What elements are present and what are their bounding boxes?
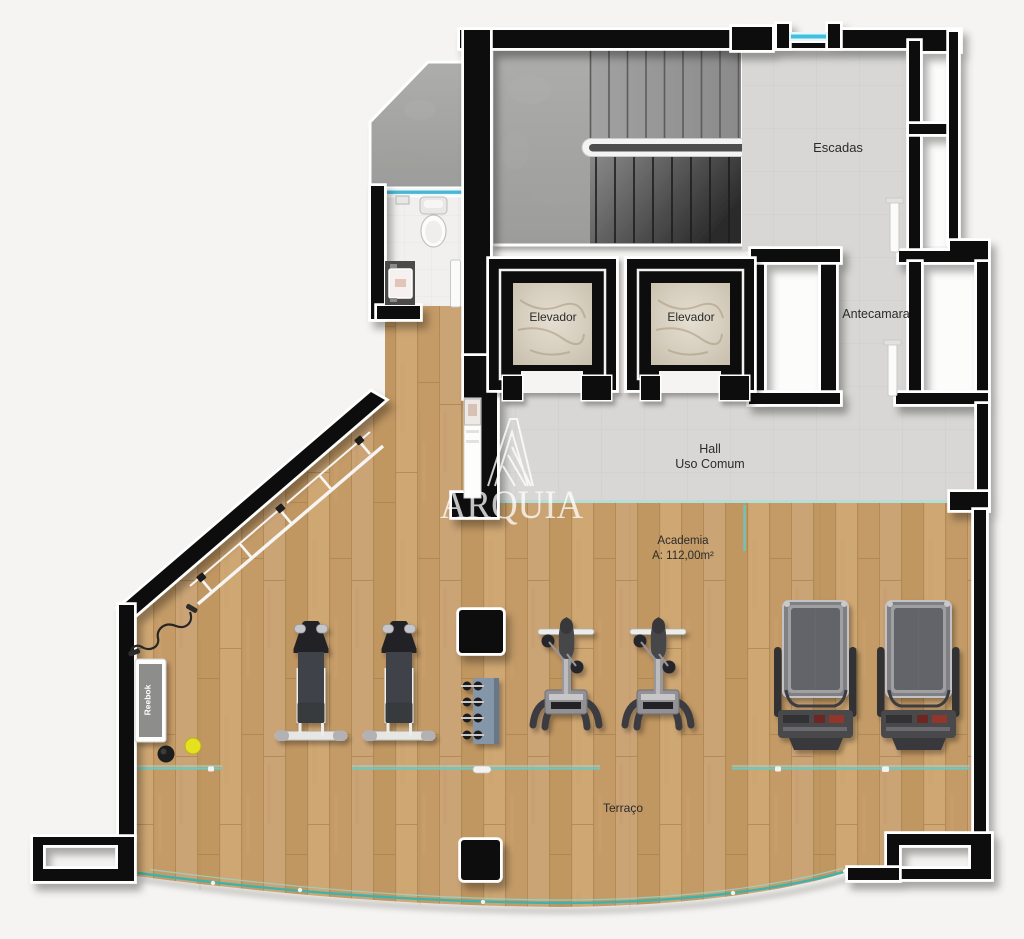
svg-text:ARQUIA: ARQUIA	[440, 482, 583, 527]
svg-text:A: 112,00m²: A: 112,00m²	[652, 550, 714, 562]
svg-text:Hall: Hall	[699, 442, 721, 456]
svg-text:Terraço: Terraço	[603, 801, 643, 815]
svg-text:Elevador: Elevador	[529, 310, 576, 324]
svg-text:Uso Comum: Uso Comum	[675, 457, 744, 471]
svg-text:Elevador: Elevador	[667, 310, 714, 324]
svg-text:Antecamara: Antecamara	[842, 307, 909, 321]
svg-text:Reebok: Reebok	[143, 684, 153, 715]
svg-text:Academia: Academia	[657, 535, 709, 547]
svg-text:Escadas: Escadas	[813, 140, 863, 155]
